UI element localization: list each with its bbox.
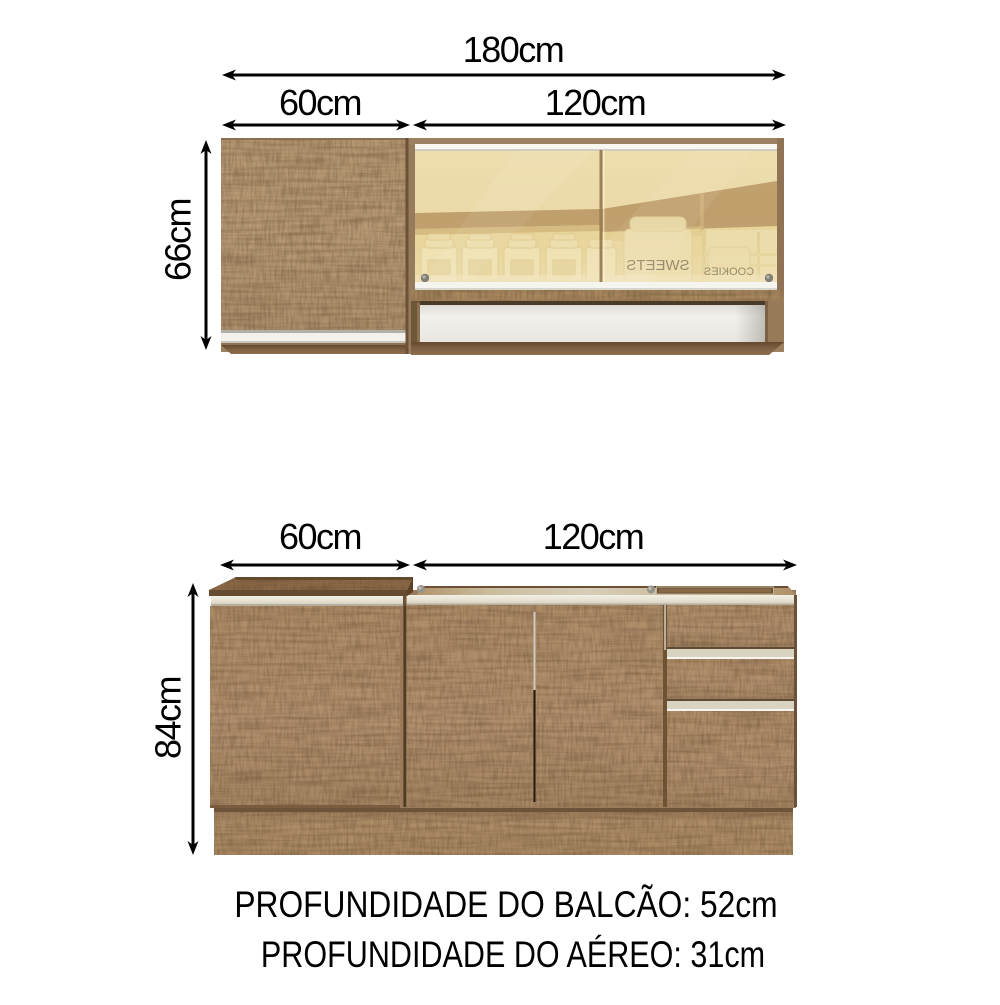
svg-text:60cm: 60cm bbox=[279, 516, 361, 557]
svg-text:180cm: 180cm bbox=[463, 29, 564, 70]
svg-text:60cm: 60cm bbox=[279, 82, 361, 123]
svg-text:120cm: 120cm bbox=[543, 516, 644, 557]
svg-text:PROFUNDIDADE DO BALCÃO: 52cm: PROFUNDIDADE DO BALCÃO: 52cm bbox=[234, 884, 777, 926]
svg-text:84cm: 84cm bbox=[148, 677, 189, 759]
svg-text:PROFUNDIDADE DO AÉREO: 31cm: PROFUNDIDADE DO AÉREO: 31cm bbox=[261, 934, 765, 975]
svg-text:120cm: 120cm bbox=[545, 82, 646, 123]
svg-text:66cm: 66cm bbox=[158, 199, 199, 281]
